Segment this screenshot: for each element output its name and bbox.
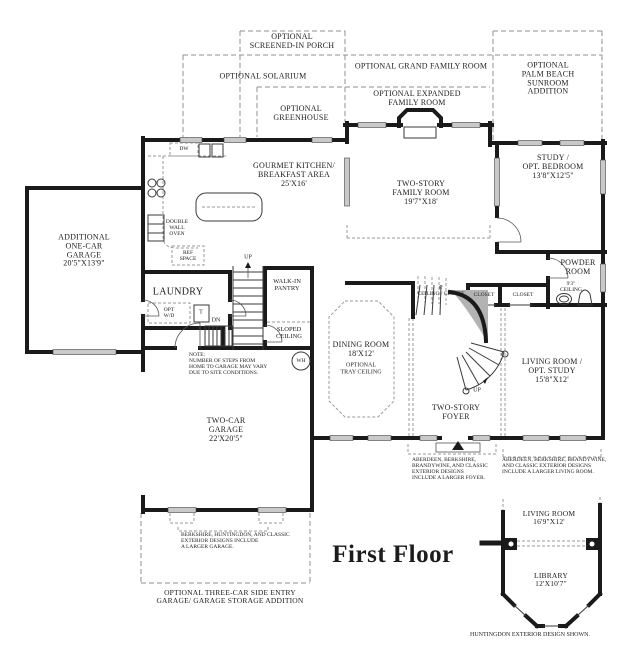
label-inset-library: LIBRARY 12'X10'7" [534, 572, 568, 588]
note-larger-garage: BERKSHIRE, HUNTINGDON, AND CLASSIC EXTER… [181, 532, 290, 550]
label-up-back-stair: UP [244, 255, 252, 262]
label-optional-greenhouse: OPTIONAL GREENHOUSE [273, 105, 328, 123]
label-laundry-tub: T [199, 310, 203, 317]
kitchen-sink [212, 144, 223, 157]
floor-plan-page: OPTIONAL SCREENED-IN PORCH OPTIONAL SOLA… [0, 0, 639, 667]
window [180, 138, 202, 143]
window [601, 160, 606, 194]
note-larger-foyer: ABERDEEN, BERKSHIRE, BRANDYWINE, AND CLA… [412, 457, 488, 481]
garage-door [168, 508, 196, 513]
label-water-heater: WH [296, 358, 305, 364]
page-title: First Floor [332, 542, 453, 568]
note-exterior-design: HUNTINGDON EXTERIOR DESIGN SHOWN. [470, 632, 590, 639]
label-powder-ceiling: 9'3" CEILING [560, 281, 582, 293]
window [523, 436, 549, 441]
garage-door [258, 508, 286, 513]
label-dishwasher: DW [179, 146, 188, 152]
window [495, 158, 500, 206]
cooktop-burner [157, 179, 165, 187]
label-optional-solarium: OPTIONAL SOLARIUM [220, 73, 307, 82]
label-kitchen: GOURMET KITCHEN/ BREAKFAST AREA 25'X16' [253, 162, 335, 188]
label-optional-grand-family-room: OPTIONAL GRAND FAMILY ROOM [355, 63, 487, 72]
floor-plan-drawing [0, 0, 639, 667]
label-sloped-ceiling: SLOPED CEILING [276, 326, 302, 340]
back-staircase [233, 262, 263, 350]
window [345, 158, 350, 206]
label-inset-living-room: LIVING ROOM 16'9"X12' [523, 510, 575, 526]
kitchen-fixtures [148, 143, 262, 265]
label-powder-room: POWDER ROOM [561, 259, 596, 277]
label-foyer: TWO-STORY FOYER [432, 404, 480, 422]
window [330, 436, 353, 441]
label-family-room: TWO-STORY FAMILY ROOM 19'7"X18' [392, 180, 449, 206]
note-steps: NOTE: NUMBER OF STEPS FROM HOME TO GARAG… [189, 352, 267, 376]
label-understair-closet: 8' CEILING / CLOSET [417, 285, 464, 297]
label-living-room: LIVING ROOM / OPT. STUDY 15'8"X12' [522, 358, 582, 384]
front-door [436, 441, 480, 452]
label-closet-a: CLOSET [474, 292, 495, 298]
dining-tray-outline [329, 301, 394, 417]
window [518, 141, 542, 146]
note-larger-living-room: ABERDEEN, BERKSHIRE, BRANDYWINE, AND CLA… [502, 457, 606, 475]
window [420, 436, 437, 441]
kitchen-sink [199, 144, 210, 157]
toilet [557, 294, 572, 305]
window [452, 123, 480, 128]
label-opt-washer-dryer: OPT W/D [164, 307, 175, 319]
label-dn-stair: DN [212, 318, 221, 325]
label-dining-tray: OPTIONAL TRAY CEILING [340, 362, 381, 375]
window [560, 141, 584, 146]
label-one-car-garage: ADDITIONAL ONE-CAR GARAGE 20'5"X13'9" [58, 233, 110, 268]
label-two-car-garage: TWO-CAR GARAGE 22'X20'5" [207, 417, 246, 443]
window [358, 123, 386, 128]
label-ref-space: REF SPACE [180, 250, 197, 262]
label-closet-b: CLOSET [513, 292, 534, 298]
label-optional-three-car-garage: OPTIONAL THREE-CAR SIDE ENTRY GARAGE/ GA… [156, 589, 303, 605]
label-up-main-stair: UP [473, 388, 481, 395]
label-optional-expanded-family-room: OPTIONAL EXPANDED FAMILY ROOM [373, 90, 460, 108]
cooktop-burner [157, 189, 165, 197]
label-optional-palm-beach-sunroom: OPTIONAL PALM BEACH SUNROOM ADDITION [503, 61, 594, 96]
window [560, 436, 586, 441]
window [473, 436, 490, 441]
window [368, 436, 391, 441]
window [601, 264, 606, 292]
window [312, 138, 332, 143]
garage-door [53, 350, 116, 355]
label-laundry: LAUNDRY [153, 287, 203, 298]
label-pantry: WALK-IN PANTRY [273, 278, 301, 292]
wall-oven [148, 215, 164, 241]
label-dining-room: DINING ROOM 18'X12' [333, 341, 390, 359]
cooktop-burner [148, 179, 156, 187]
label-optional-screened-porch: OPTIONAL SCREENED-IN PORCH [250, 33, 335, 51]
entry-marker [452, 441, 464, 450]
label-wall-oven: DOUBLE WALL OVEN [166, 219, 188, 237]
cooktop-burner [148, 189, 156, 197]
label-study: STUDY / OPT. BEDROOM 13'8"X12'5" [523, 154, 584, 180]
window [224, 138, 246, 143]
